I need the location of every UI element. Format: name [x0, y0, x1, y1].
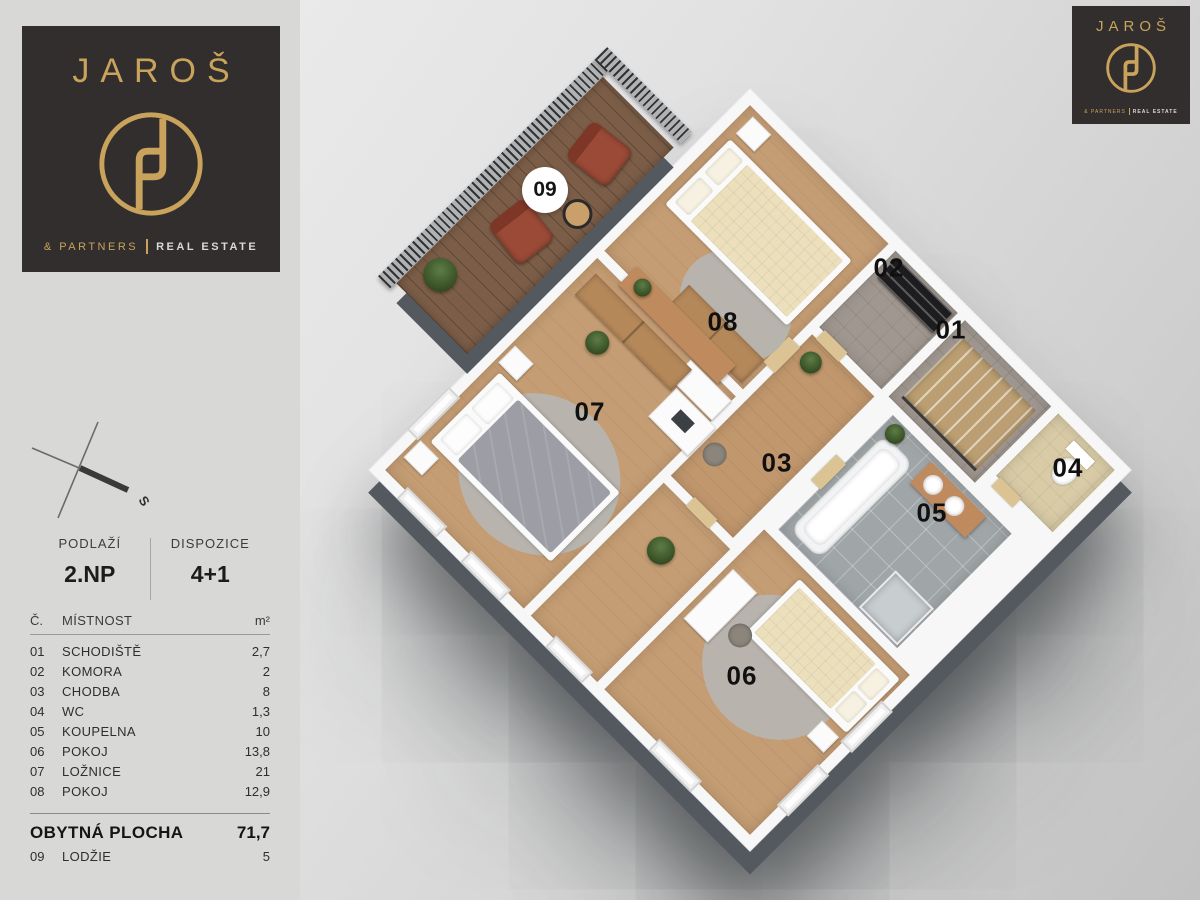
room-label-04: 04	[1053, 453, 1084, 484]
room-number: 09	[30, 849, 62, 864]
brand-logo: JAROŠ & PARTNERS REAL ESTATE	[22, 26, 280, 272]
brand-name: JAROŠ	[1091, 18, 1171, 35]
room-label-01: 01	[936, 315, 967, 346]
room-number: 06	[30, 744, 62, 759]
brand-tagline: & PARTNERS REAL ESTATE	[44, 239, 258, 254]
plant	[416, 251, 464, 299]
total-row: OBYTNÁ PLOCHA 71,7	[30, 820, 270, 846]
page: 01 02 03 04 05 06 07 08 09 JAROŠ & PARTN…	[0, 0, 1200, 900]
table-rule	[30, 813, 270, 814]
brand-name: JAROŠ	[61, 52, 240, 91]
room-name: WC	[62, 704, 252, 719]
room-name: LODŽIE	[62, 849, 263, 864]
room-name: CHODBA	[62, 684, 263, 699]
brand-real-estate: REAL ESTATE	[156, 241, 258, 253]
table-row: 08 POKOJ 12,9	[30, 781, 270, 801]
floor-value: 2.NP	[30, 561, 150, 588]
brand-monogram-icon	[92, 105, 210, 223]
room-badge-09: 09	[522, 167, 568, 213]
room-number: 05	[30, 724, 62, 739]
brand-tagline: & PARTNERS REAL ESTATE	[1084, 108, 1177, 115]
room-label-08: 08	[708, 307, 739, 338]
table-rule	[30, 634, 270, 635]
room-label-02: 02	[874, 253, 905, 284]
room-name: LOŽNICE	[62, 764, 256, 779]
disposition-label: DISPOZICE	[151, 536, 271, 551]
tagline-divider	[1129, 108, 1130, 115]
floor-column: PODLAŽÍ 2.NP	[30, 536, 150, 588]
room-name: POKOJ	[62, 744, 245, 759]
room-number: 03	[30, 684, 62, 699]
room-name: SCHODIŠTĚ	[62, 644, 252, 659]
brand-real-estate: REAL ESTATE	[1133, 109, 1178, 115]
floor-info: PODLAŽÍ 2.NP DISPOZICE 4+1	[30, 536, 270, 588]
room-label-03: 03	[762, 448, 793, 479]
room-area: 21	[256, 764, 270, 779]
patio-chair	[565, 120, 634, 188]
table-row: 03 CHODBA 8	[30, 681, 270, 701]
room-area: 8	[263, 684, 270, 699]
compass-south-label: S	[136, 493, 153, 509]
header-area: m²	[255, 613, 270, 628]
table-header: Č. MÍSTNOST m²	[30, 610, 270, 630]
room-area: 12,9	[245, 784, 270, 799]
total-value: 71,7	[237, 823, 270, 843]
room-label-06: 06	[727, 661, 758, 692]
tagline-divider	[146, 239, 148, 254]
room-number: 07	[30, 764, 62, 779]
room-area: 2,7	[252, 644, 270, 659]
table-row: 09 LODŽIE 5	[30, 846, 270, 866]
total-label: OBYTNÁ PLOCHA	[30, 823, 237, 843]
room-name: POKOJ	[62, 784, 245, 799]
room-area: 10	[256, 724, 270, 739]
table-row: 01 SCHODIŠTĚ 2,7	[30, 641, 270, 661]
room-label-05: 05	[917, 498, 948, 529]
room-area: 2	[263, 664, 270, 679]
room-name: KOMORA	[62, 664, 263, 679]
brand-logo-small: JAROŠ & PARTNERS REAL ESTATE	[1072, 6, 1190, 124]
brand-monogram-icon	[1103, 40, 1159, 96]
room-number: 04	[30, 704, 62, 719]
table-row: 02 KOMORA 2	[30, 661, 270, 681]
header-room: MÍSTNOST	[62, 613, 255, 628]
room-area: 13,8	[245, 744, 270, 759]
table-row: 04 WC 1,3	[30, 701, 270, 721]
table-row: 06 POKOJ 13,8	[30, 741, 270, 761]
header-number: Č.	[30, 613, 62, 628]
room-area: 1,3	[252, 704, 270, 719]
floor-label: PODLAŽÍ	[30, 536, 150, 551]
room-name: KOUPELNA	[62, 724, 256, 739]
room-number: 08	[30, 784, 62, 799]
brand-partners: & PARTNERS	[44, 241, 138, 253]
room-area: 5	[263, 849, 270, 864]
sidebar: JAROŠ & PARTNERS REAL ESTATE S PODLAŽÍ 2…	[0, 0, 300, 900]
compass-icon: S	[14, 416, 164, 526]
table-row: 05 KOUPELNA 10	[30, 721, 270, 741]
room-table: Č. MÍSTNOST m² 01 SCHODIŠTĚ 2,7 02 KOMOR…	[30, 610, 270, 866]
disposition-value: 4+1	[151, 561, 271, 588]
room-label-07: 07	[575, 397, 606, 428]
room-number: 02	[30, 664, 62, 679]
brand-partners: & PARTNERS	[1084, 109, 1126, 115]
room-number: 01	[30, 644, 62, 659]
table-row: 07 LOŽNICE 21	[30, 761, 270, 781]
disposition-column: DISPOZICE 4+1	[151, 536, 271, 588]
